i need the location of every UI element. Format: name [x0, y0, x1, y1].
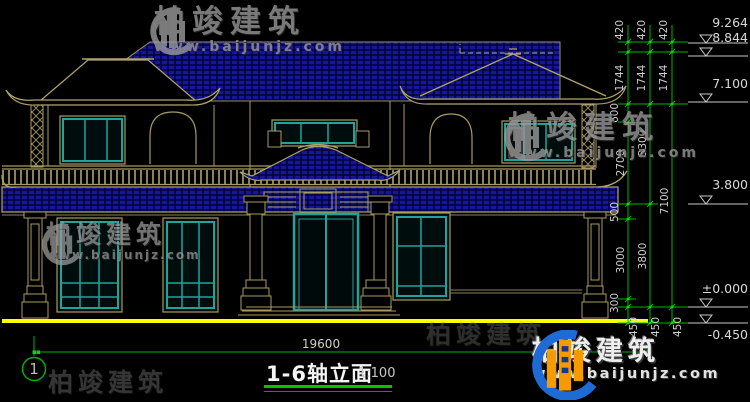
arch-niche-right — [430, 114, 472, 164]
window-1f-right — [393, 213, 450, 300]
low-wall-line — [450, 290, 582, 293]
scale-label: 1:100 — [358, 366, 395, 381]
window-1f-left — [57, 218, 122, 312]
ground-line — [2, 319, 648, 323]
dim-label: 420 — [659, 20, 670, 40]
axis-bubble-number: 1 — [22, 360, 46, 378]
window-2f-left — [60, 116, 125, 164]
pilaster-right — [582, 212, 608, 318]
dim-label: 420 — [637, 20, 648, 40]
window-2f-right — [502, 121, 575, 163]
dim-label: 3000 — [616, 247, 627, 274]
dim-label: 600 — [610, 103, 621, 123]
window-2f-center — [268, 120, 369, 147]
porch-roof — [240, 145, 400, 181]
elevation-label: 9.264 — [700, 17, 748, 30]
lattice-column-right — [582, 105, 594, 168]
dim-label: 420 — [615, 20, 626, 40]
dim-label: 7100 — [660, 188, 671, 215]
brand-logo: 柏竣建筑 www.baijunjz.com — [528, 330, 720, 382]
title-underline — [264, 385, 392, 388]
dim-label: 1744 — [637, 65, 648, 92]
title-underline-thin — [264, 391, 392, 392]
arch-niche-left — [150, 112, 196, 164]
elevation-label: 7.100 — [700, 78, 748, 91]
elevation-label: 3.800 — [700, 179, 748, 192]
dim-label: 500 — [610, 202, 621, 222]
brand-logo-icon — [528, 330, 598, 400]
pilaster-left — [22, 212, 48, 318]
entrance-door — [294, 214, 358, 310]
dim-label: 300 — [610, 293, 621, 313]
cad-elevation-drawing: 420 420 420 1744 1744 1744 600 2700 500 … — [0, 0, 750, 402]
dim-label: 1744 — [659, 65, 670, 92]
elevation-label: 8.844 — [700, 32, 748, 45]
lattice-column-left — [31, 105, 43, 167]
elevation-label: ±0.000 — [694, 283, 748, 296]
dim-label: 3300 — [638, 130, 649, 157]
dim-label: 1744 — [615, 65, 626, 92]
porch-column-right — [361, 196, 392, 310]
window-1f-mid — [163, 218, 218, 312]
porch-column-left — [241, 196, 271, 310]
dim-label: 2700 — [616, 150, 627, 177]
total-width-dim: 19600 — [296, 338, 346, 350]
drawing-title: 1-6轴立面 — [266, 358, 373, 388]
dim-label: 3800 — [638, 243, 649, 270]
